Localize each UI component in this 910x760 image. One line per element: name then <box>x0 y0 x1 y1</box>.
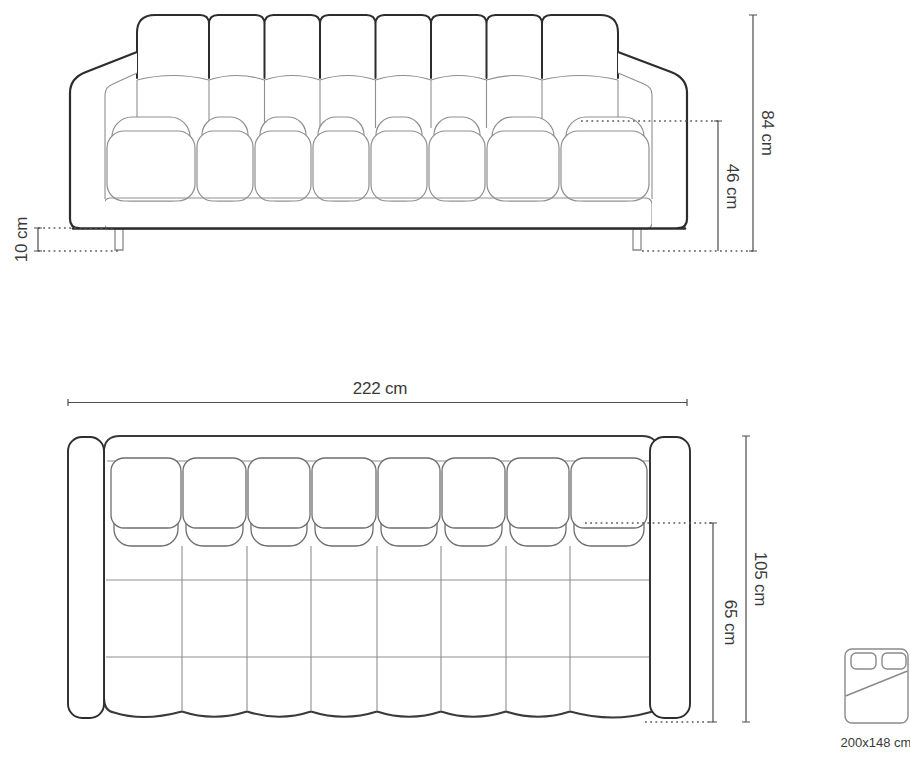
seat-cushion <box>487 131 559 201</box>
seat-cushion <box>561 131 649 201</box>
width-dimension-line <box>68 399 687 406</box>
width-dimension-label: 222 cm <box>353 379 408 398</box>
back-cushion-top <box>312 458 376 528</box>
back-cushion-top <box>183 458 246 528</box>
back-cushions <box>137 15 618 78</box>
sofa-legs <box>115 229 641 250</box>
bed-pillow-left <box>851 653 876 669</box>
leg-height-dimension-line <box>34 228 42 251</box>
back-cushion-top <box>378 458 440 528</box>
sleeping-area: 200x148 cm <box>841 649 910 750</box>
seat-cushion <box>197 131 253 201</box>
seat-depth-dimension-line <box>709 523 717 722</box>
diagram-svg: 84 cm 46 cm 10 cm <box>0 0 910 760</box>
seat-depth-extension-lines <box>585 523 713 722</box>
seat-cushion <box>313 131 369 201</box>
height-dimension-line <box>749 15 757 251</box>
seat-height-dimension-line <box>714 121 722 251</box>
depth-dimension: 105 cm <box>742 436 770 722</box>
bed-pillow-right <box>882 653 906 669</box>
depth-dimension-label: 105 cm <box>751 552 770 607</box>
back-cushion-tops <box>111 458 647 528</box>
bed-size-label: 200x148 cm <box>841 735 910 750</box>
back-cushion-top <box>571 458 647 528</box>
leg-height-extension-lines <box>38 228 119 251</box>
seat-height-dimension-label: 46 cm <box>723 164 742 209</box>
height-dimension-label: 84 cm <box>758 110 777 155</box>
sofa-dimension-diagram: 84 cm 46 cm 10 cm <box>0 0 910 760</box>
back-cushion-top <box>111 458 181 528</box>
width-dimension: 222 cm <box>68 379 687 406</box>
seat-depth-dimension-label: 65 cm <box>721 600 740 645</box>
seat-cushion <box>255 131 311 201</box>
depth-dimension-line <box>742 436 750 722</box>
seat-cushion <box>429 131 485 201</box>
seat-cushion <box>107 131 195 201</box>
leg-height-dimension-label: 10 cm <box>12 217 31 262</box>
back-cushion-top <box>507 458 569 528</box>
seat-cushion-fronts <box>107 131 649 201</box>
seat-cushion <box>371 131 427 201</box>
back-cushion-top <box>442 458 505 528</box>
bed-icon <box>845 649 908 723</box>
height-dimension: 84 cm <box>749 15 777 251</box>
top-view: 222 cm 105 cm 65 cm <box>68 379 770 722</box>
base-rail <box>104 198 652 229</box>
seat-grid <box>106 546 656 710</box>
left-armrest-top-view <box>68 437 104 718</box>
back-cushion-top <box>248 458 310 528</box>
right-armrest-top-view <box>650 437 690 718</box>
front-edge-scallops <box>104 698 658 718</box>
front-view: 84 cm 46 cm 10 cm <box>12 15 776 262</box>
